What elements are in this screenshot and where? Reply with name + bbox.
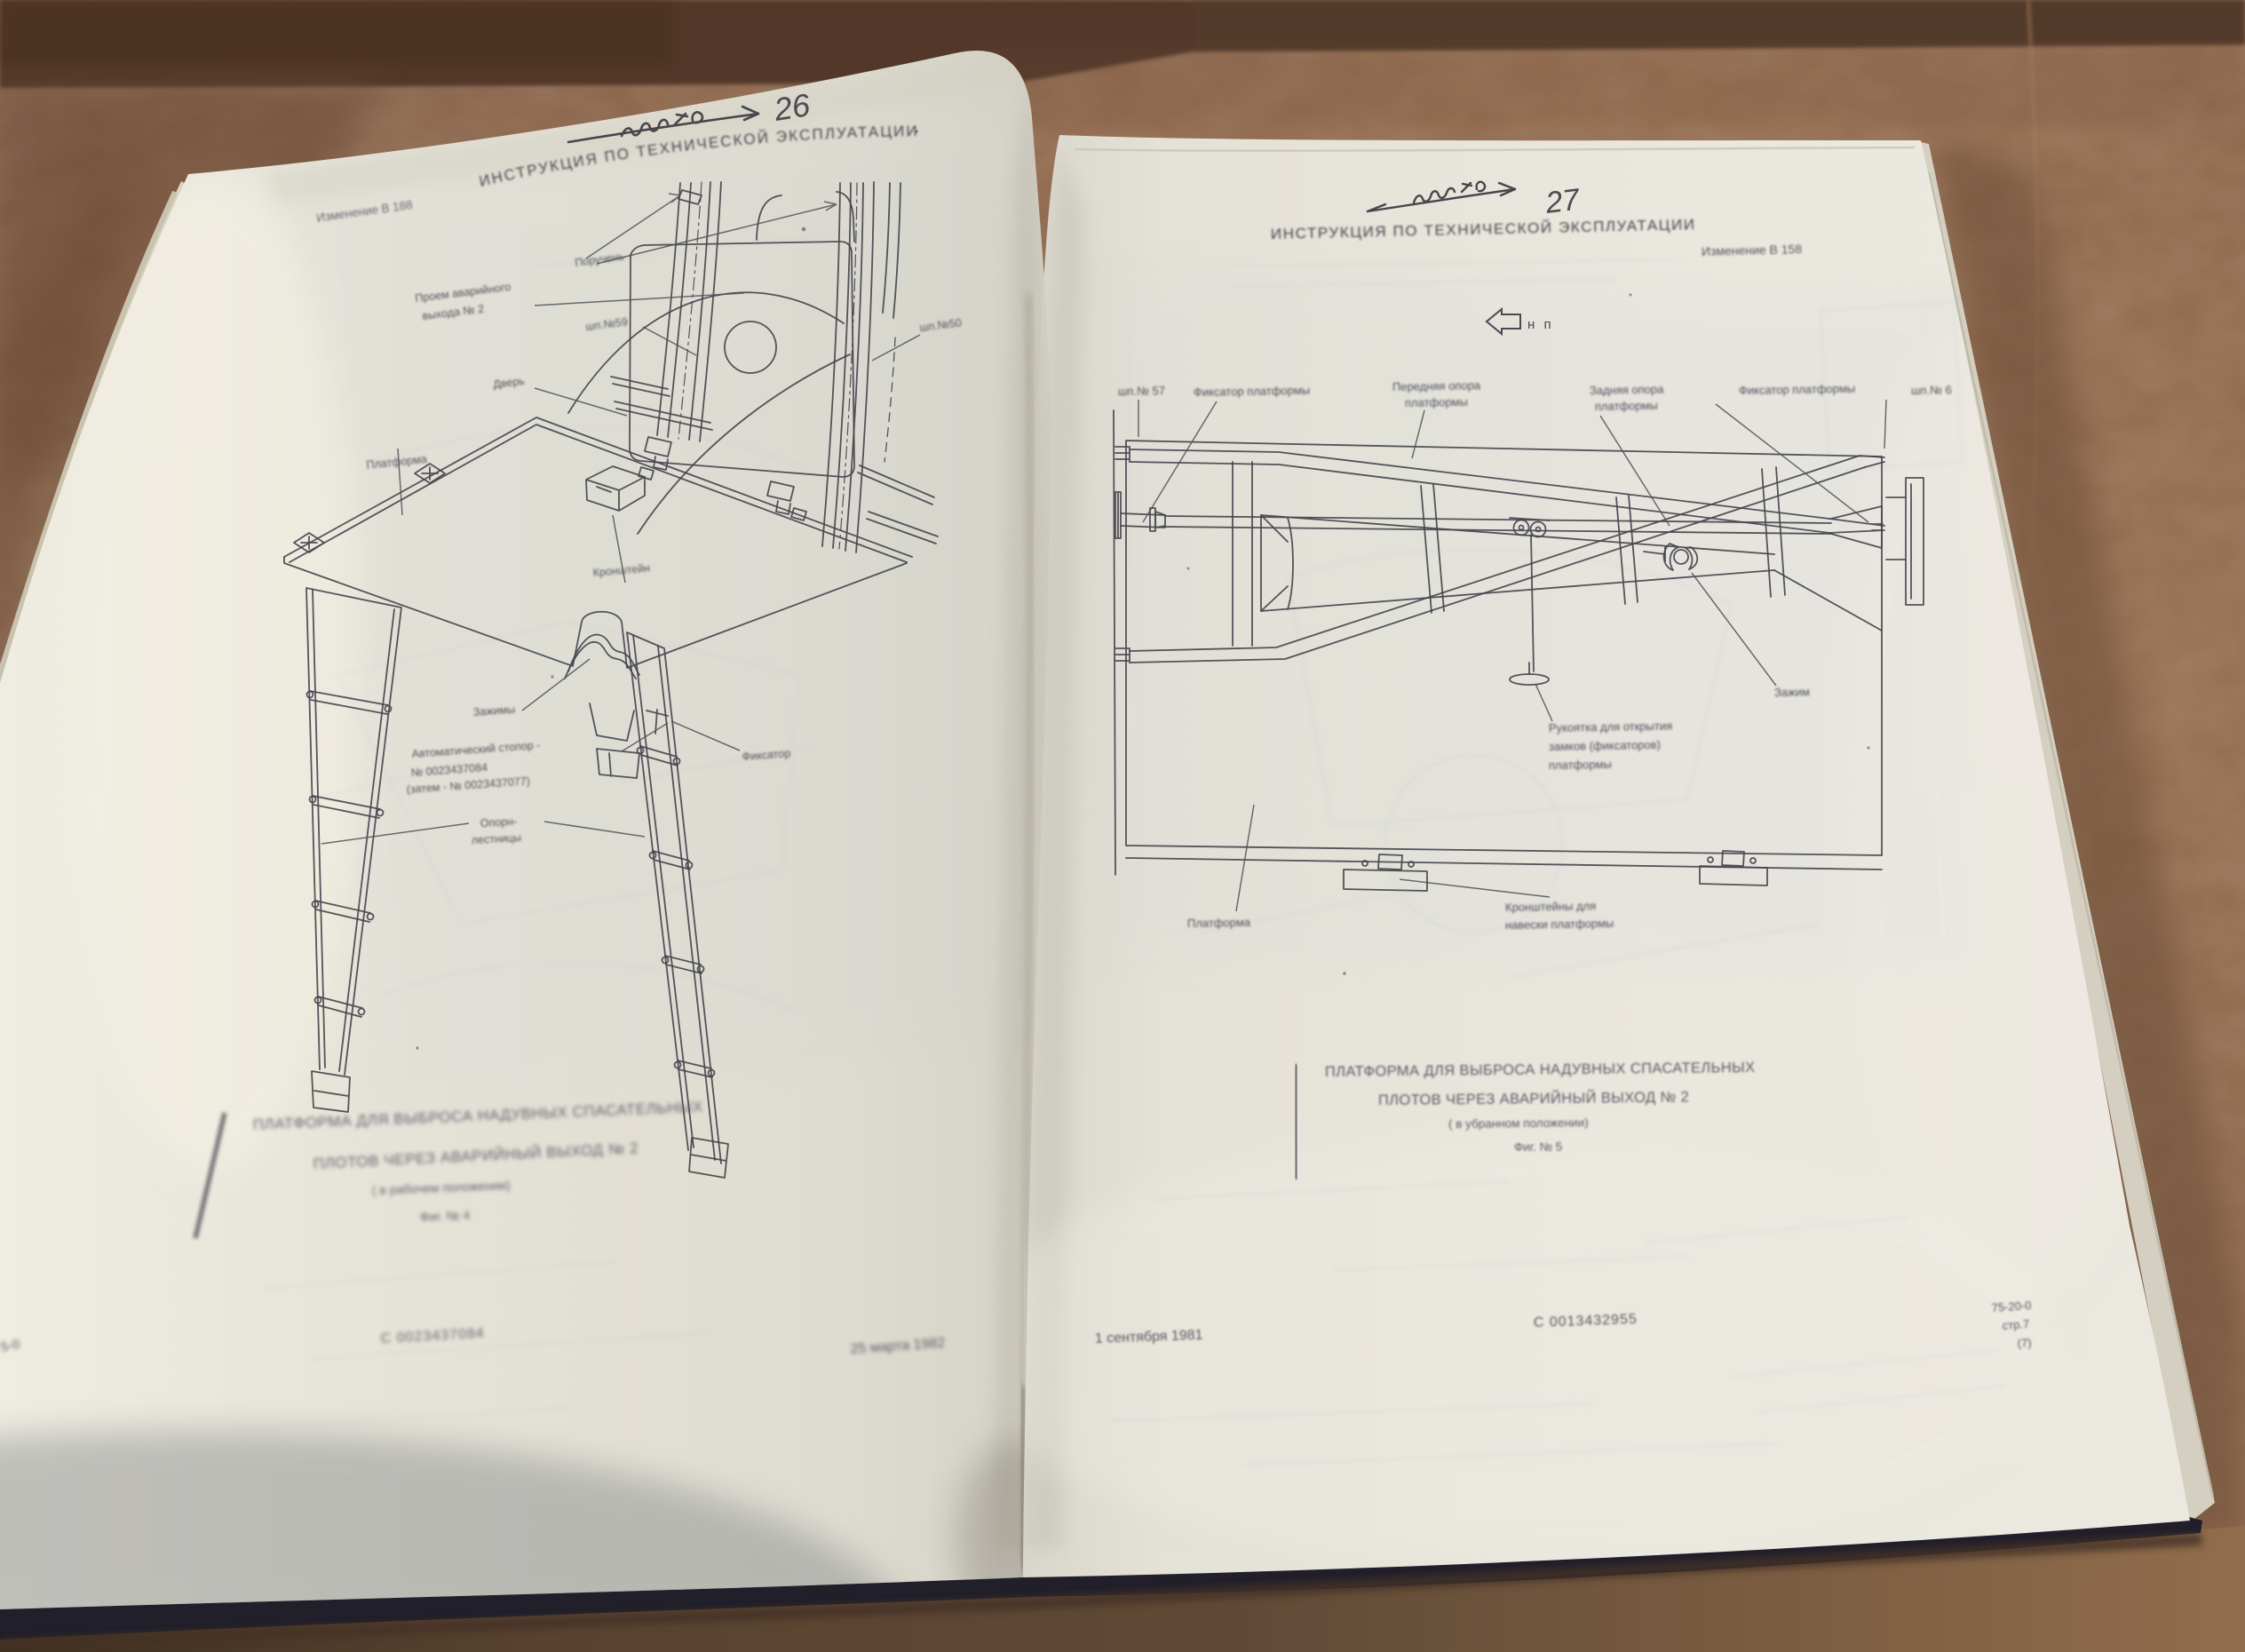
- svg-text:Изменение В 158: Изменение В 158: [1702, 242, 1803, 258]
- svg-text:шп.№ 6: шп.№ 6: [1911, 383, 1952, 397]
- svg-text:Фиксатор платформы: Фиксатор платформы: [1194, 384, 1311, 399]
- svg-text:ПЛОТОВ ЧЕРЕЗ АВАРИЙНЫЙ ВЫХОД №: ПЛОТОВ ЧЕРЕЗ АВАРИЙНЫЙ ВЫХОД № 2: [1378, 1088, 1689, 1108]
- svg-text:платформы: платформы: [1595, 399, 1658, 413]
- svg-text:26: 26: [771, 86, 813, 128]
- svg-text:навески платформы: навески платформы: [1505, 917, 1614, 932]
- svg-text:(7): (7): [2017, 1336, 2032, 1350]
- svg-text:н п: н п: [1527, 317, 1554, 332]
- svg-text:лестницы: лестницы: [471, 831, 521, 846]
- svg-text:Кронштейны для: Кронштейны для: [1505, 899, 1597, 914]
- svg-text:замков (фиксаторов): замков (фиксаторов): [1549, 738, 1661, 753]
- svg-text:платформы: платформы: [1405, 395, 1468, 409]
- svg-text:Фиксатор платформы: Фиксатор платформы: [1739, 382, 1856, 397]
- svg-text:Фиг. № 5: Фиг. № 5: [1514, 1140, 1562, 1154]
- svg-text:Зажим: Зажим: [1774, 685, 1810, 699]
- svg-text:27: 27: [1543, 182, 1582, 220]
- svg-text:шп.№ 57: шп.№ 57: [1118, 384, 1165, 398]
- svg-text:Фиг. № 4: Фиг. № 4: [420, 1208, 471, 1224]
- svg-text:Опорн-: Опорн-: [480, 815, 517, 830]
- svg-text:платформы: платформы: [1549, 758, 1612, 772]
- svg-text:Рукоятка для открытия: Рукоятка для открытия: [1549, 719, 1673, 735]
- svg-text:стр.7: стр.7: [2002, 1317, 2030, 1332]
- svg-text:Платформа: Платформа: [1187, 916, 1251, 930]
- svg-text:Передняя опора: Передняя опора: [1392, 378, 1481, 393]
- svg-text:( в убранном положении): ( в убранном положении): [1448, 1116, 1589, 1131]
- svg-text:75-20-0: 75-20-0: [1991, 1299, 2032, 1314]
- svg-text:Задняя опора: Задняя опора: [1590, 383, 1665, 397]
